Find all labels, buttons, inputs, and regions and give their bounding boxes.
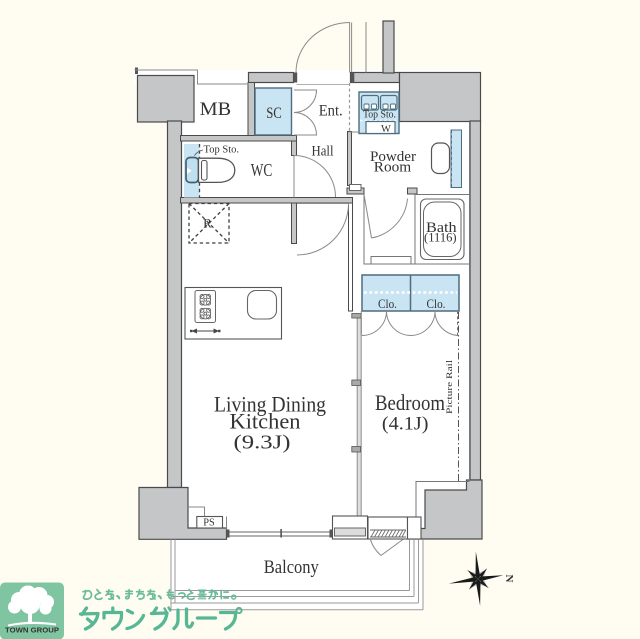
svg-text:Kitchen: Kitchen [230,409,301,434]
svg-text:Balcony: Balcony [264,557,319,578]
svg-text:TOWN GROUP: TOWN GROUP [5,626,59,635]
svg-text:Picture Rail: Picture Rail [444,359,454,414]
svg-text:SC: SC [266,105,282,122]
svg-text:N: N [503,575,515,583]
svg-text:(1116): (1116) [424,231,457,245]
svg-text:(9.3J): (9.3J) [234,433,291,454]
svg-text:WC: WC [251,160,273,180]
svg-text:Clo.: Clo. [427,296,446,311]
svg-text:W: W [381,124,391,135]
svg-text:Top Sto.: Top Sto. [363,110,396,121]
svg-text:(4.1J): (4.1J) [382,414,429,435]
svg-text:Ent.: Ent. [319,103,343,120]
svg-text:MB: MB [200,99,232,120]
svg-text:Top Sto.: Top Sto. [204,145,240,156]
svg-text:R: R [203,216,212,231]
svg-text:PS: PS [203,518,215,529]
svg-text:Room: Room [374,160,412,176]
svg-text:Clo.: Clo. [378,296,397,311]
svg-text:Bedroom: Bedroom [375,390,445,415]
svg-text:Hall: Hall [312,144,334,160]
